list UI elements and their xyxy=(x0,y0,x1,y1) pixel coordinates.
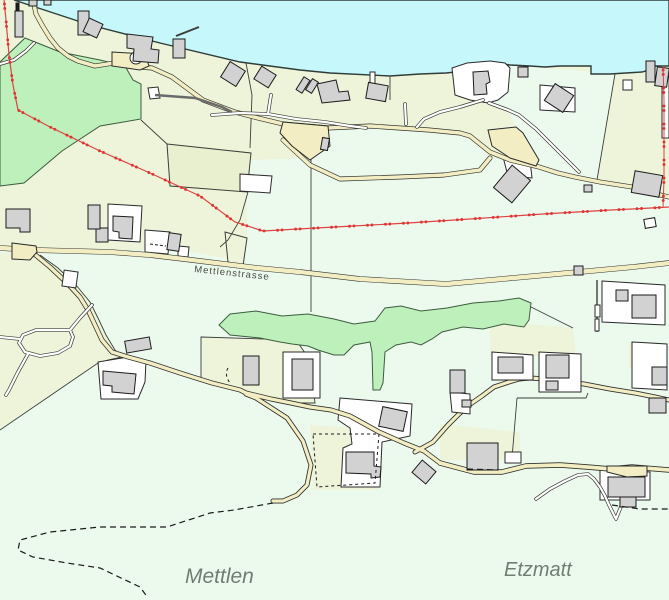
svg-text:Etzmatt: Etzmatt xyxy=(504,559,573,581)
svg-text:Mettlen: Mettlen xyxy=(185,565,254,588)
